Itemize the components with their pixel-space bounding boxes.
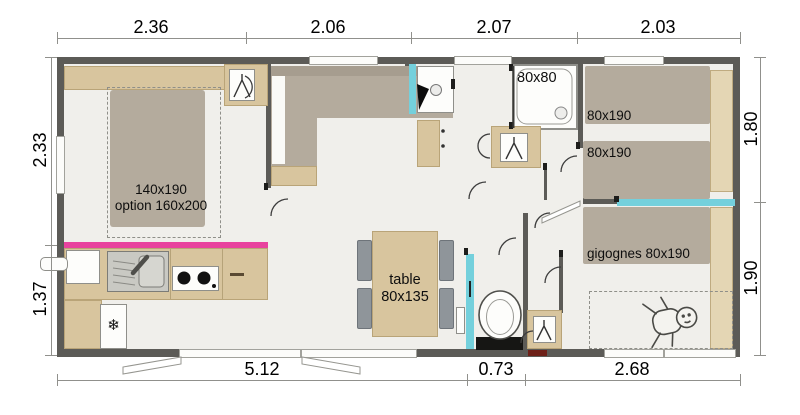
bedroom-partition-slider [617,199,735,206]
window-door-front-1 [179,349,301,358]
wall-hall [544,166,547,200]
dim-bottom-3: 2.68 [602,360,662,378]
trundle-pullout-outline [589,291,733,349]
dim-top-3: 2.07 [464,18,524,36]
kitchen-counter-left [64,300,102,349]
table-label: table 80x135 [372,272,438,306]
wardrobe-bathroom-hanger-box [500,133,528,162]
trundle-bed-label: gigognes 80x190 [587,246,690,262]
wc-shelf [456,307,465,334]
dim-tick [754,355,766,356]
floorplan-canvas: 140x190 option 160x200 ❄ table 80x135 80… [0,0,800,415]
dim-top-4: 2.03 [628,18,688,36]
dim-tick [45,245,57,246]
entrance-door-leaf [302,357,360,374]
dining-chair [357,240,372,281]
fridge-snowflake-icon: ❄ [100,316,127,336]
water-heater [66,250,100,284]
wardrobe-hall-hanger-box [533,316,556,343]
entrance-door-leaf [123,357,181,374]
dim-right-2: 1.90 [742,248,760,308]
dining-chair [357,288,372,329]
counter-seam [170,249,171,299]
wc-door-handle [469,281,471,297]
dim-tick [740,32,741,44]
entrance-threshold [528,350,547,356]
dim-tick [57,32,58,44]
window-living [309,56,378,65]
bathroom-cabinet [417,120,440,167]
wall-right [733,57,740,357]
master-bed-option: option 160x200 [100,198,222,214]
dim-left-1: 2.33 [31,120,49,180]
door-hinge [543,163,547,170]
window-bathroom [454,56,512,65]
drawer-handle [230,273,244,276]
washbasin [417,66,454,113]
bathroom-sliding-door [409,64,416,114]
dining-chair [439,240,454,281]
kitchen-sink [107,251,169,292]
bed-headboard-shelf-top [710,70,733,192]
master-bed-label: 140x190 option 160x200 [100,182,222,214]
wall-nook [559,255,563,313]
dim-top-1: 2.36 [121,18,181,36]
dim-tick [45,355,57,356]
dim-bottom-1: 5.12 [232,360,292,378]
wc-sliding-door [466,254,474,349]
dim-tick [754,202,766,203]
sofa-cushion [272,76,285,164]
window-bedroom-bottom-2 [664,349,736,358]
dim-line-right [760,57,761,356]
toilet-cistern [476,337,523,350]
door-hinge [264,183,268,190]
dim-tick [577,32,578,44]
shower-door-hinge [509,64,513,71]
table-word: table [372,272,438,289]
counter-seam [222,249,223,299]
window-bedroom-top [604,56,664,65]
shower-door-hinge [509,122,513,129]
dining-chair [439,288,454,329]
dim-line-top [57,38,740,39]
wall-left [57,57,64,357]
dim-line-left [51,57,52,356]
dim-right-1: 1.80 [742,99,760,159]
basin-fitting [451,79,455,89]
dim-tick [411,32,412,44]
sofa-side-cabinet [271,166,317,186]
dim-tick [45,57,57,58]
kitchen-hob [172,266,219,291]
dim-line-bottom [57,380,740,381]
door-hinge [559,250,563,257]
wall-bathroom-right [578,64,583,148]
door-hinge [464,248,468,255]
window-master-left [56,136,65,194]
dim-tick [246,32,247,44]
door-hinge [576,142,580,149]
dim-tick [754,57,766,58]
door-hinge [614,196,619,202]
table-size: 80x135 [372,289,438,306]
master-bed-size: 140x190 [100,182,222,198]
wardrobe-master-hanger-box [229,69,255,101]
dim-top-2: 2.06 [298,18,358,36]
dim-bottom-2: 0.73 [466,360,526,378]
dim-tick [740,374,741,386]
dim-tick [57,374,58,386]
shower-label: 80x80 [517,70,557,87]
twin-bed-2-label: 80x190 [587,145,631,161]
dim-left-2: 1.37 [31,269,49,329]
window-bedroom-bottom-1 [604,349,664,358]
window-door-front-2 [301,349,417,358]
twin-bed-1-label: 80x190 [587,108,631,124]
